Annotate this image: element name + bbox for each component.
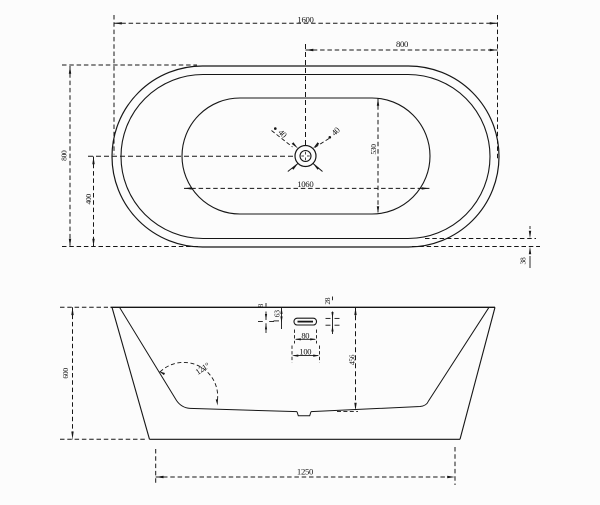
svg-text:8: 8 (256, 304, 265, 308)
svg-text:456: 456 (348, 354, 357, 365)
svg-text:800: 800 (60, 150, 69, 161)
svg-text:1600: 1600 (297, 14, 314, 24)
svg-text:1060: 1060 (297, 179, 314, 189)
svg-text:28: 28 (323, 297, 332, 304)
svg-text:800: 800 (396, 39, 409, 49)
svg-text:63: 63 (272, 310, 281, 317)
svg-text:80: 80 (301, 330, 309, 340)
svg-text:1250: 1250 (297, 467, 314, 477)
svg-text:38: 38 (518, 257, 527, 264)
svg-text:600: 600 (61, 368, 70, 379)
svg-text:400: 400 (84, 194, 93, 205)
svg-text:100: 100 (299, 346, 311, 356)
svg-text:530: 530 (369, 144, 378, 155)
